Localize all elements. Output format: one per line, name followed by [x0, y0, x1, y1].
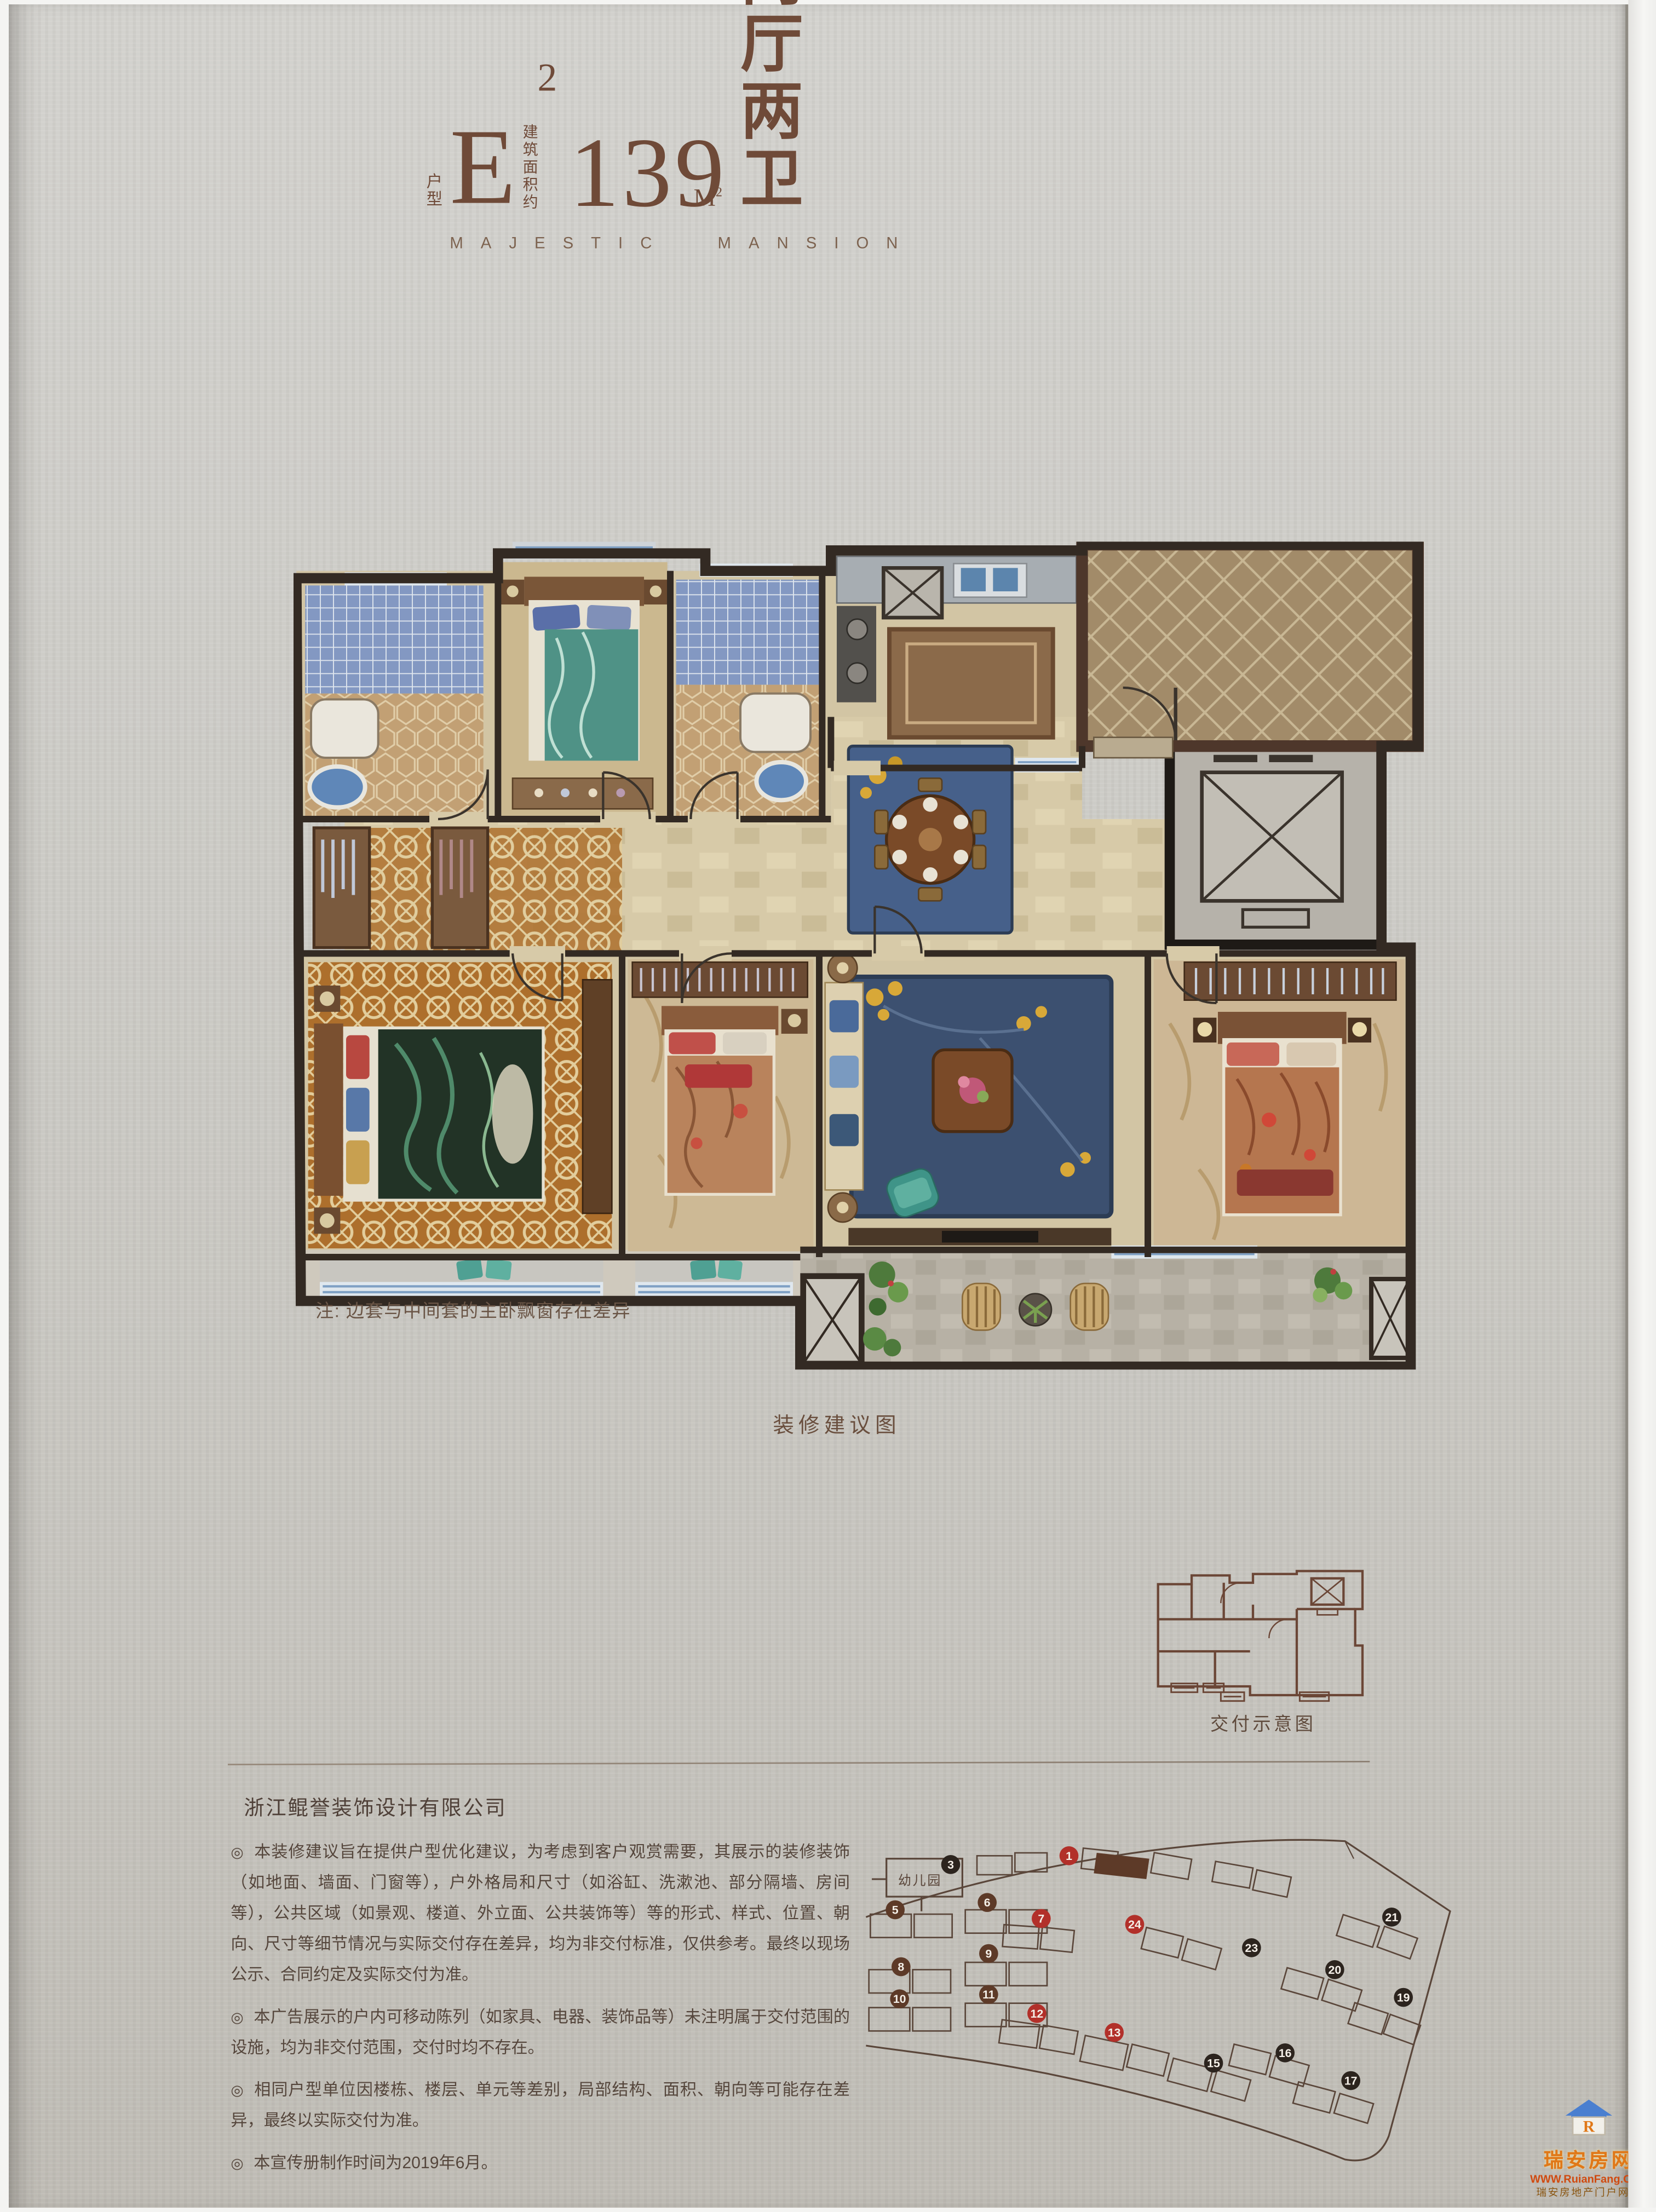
site-boundary	[866, 1840, 1450, 2160]
tv-icon	[942, 1231, 1038, 1242]
svg-text:11: 11	[982, 1988, 995, 2001]
elevator-x-icon	[1312, 1579, 1344, 1605]
disclaimer-text: 本广告展示的户内可移动陈列（如家具、电器、装饰品等）未注明属于交付范围的设施，均…	[231, 2009, 850, 2057]
pillow-icon	[690, 1259, 717, 1280]
photo-of-brochure: 户型 E 2 建筑面积约 139 M2 四房两厅两卫 MAJESTIC MANS…	[0, 0, 1656, 2208]
lamp-icon	[1352, 1022, 1367, 1037]
living-room	[825, 953, 1112, 1245]
svg-text:8: 8	[898, 1961, 904, 1974]
subtitle-majestic-mansion: MAJESTIC MANSION	[450, 235, 915, 252]
pillow-icon	[830, 1000, 859, 1033]
divider-line	[228, 1761, 1370, 1765]
brochure-page: 户型 E 2 建筑面积约 139 M2 四房两厅两卫 MAJESTIC MANS…	[9, 4, 1628, 2208]
stove-burner-icon	[847, 663, 867, 683]
bathroom-left	[305, 572, 483, 816]
svg-text:20: 20	[1328, 1963, 1341, 1977]
svg-text:23: 23	[1245, 1942, 1258, 1955]
basin-icon	[309, 767, 365, 808]
type-letter: E 2	[450, 121, 516, 215]
floor-plan-rendering	[294, 542, 1469, 1369]
bedroom-2	[501, 542, 668, 816]
highlighted-building	[1094, 1853, 1149, 1879]
patio-chair-icon	[962, 1283, 1000, 1330]
lamp-icon	[837, 962, 848, 973]
disclaimer-item: ◎本宣传册制作时间为2019年6月。	[231, 2149, 850, 2180]
pillow-icon	[830, 1056, 859, 1088]
svg-text:17: 17	[1344, 2075, 1358, 2088]
disclaimer-text: 本宣传册制作时间为2019年6月。	[254, 2155, 497, 2173]
kindergarten-label: 幼儿园	[898, 1874, 942, 1888]
delivery-schematic	[1154, 1570, 1370, 1704]
pillow-icon	[1227, 1042, 1279, 1066]
disclaimer-item: ◎本装修建议旨在提供户型优化建议，为考虑到客户观赏需要，其展示的装修装饰（如地面…	[231, 1838, 850, 1991]
pillow-icon	[723, 1032, 767, 1054]
toilet-icon	[740, 694, 810, 752]
bedroom-4	[1154, 959, 1405, 1246]
pillow-icon	[586, 605, 631, 631]
disclaimer-text: 相同户型单位因楼栋、楼层、单元等差别，局部结构、面积、朝向等可能存在差异，最终以…	[231, 2082, 850, 2130]
svg-text:13: 13	[1108, 2026, 1121, 2040]
bullet-icon: ◎	[231, 2157, 243, 2173]
area-unit: M2	[694, 184, 722, 213]
pillow-icon	[485, 1259, 512, 1280]
wardrobe	[583, 980, 612, 1213]
master-bedroom	[308, 962, 612, 1248]
toilet-icon	[311, 699, 378, 758]
sink-icon	[961, 568, 986, 591]
bay-windows	[320, 1257, 793, 1298]
pillow-icon	[346, 1088, 370, 1132]
disclaimer-list: ◎本装修建议旨在提供户型优化建议，为考虑到客户观赏需要，其展示的装修装饰（如地面…	[231, 1838, 850, 2191]
svg-text:10: 10	[893, 1992, 906, 2006]
svg-text:12: 12	[1030, 2007, 1043, 2020]
basin-icon	[756, 762, 806, 800]
pillow-icon	[669, 1032, 715, 1054]
lamp-icon	[1198, 1022, 1212, 1037]
bullet-icon: ◎	[231, 1846, 244, 1862]
bedroom-3	[628, 959, 814, 1251]
type-label: 户型	[427, 174, 442, 209]
pillow-icon	[830, 1114, 859, 1147]
photo-background-edge	[1628, 0, 1656, 2208]
lamp-icon	[788, 1014, 801, 1027]
svg-text:16: 16	[1279, 2047, 1292, 2060]
svg-text:24: 24	[1128, 1918, 1141, 1931]
svg-text:19: 19	[1397, 1991, 1410, 2004]
bullet-icon: ◎	[231, 2083, 244, 2099]
pillow-icon	[346, 1140, 370, 1184]
rooms-text: 四房两厅两卫	[740, 0, 817, 215]
pillow-icon	[1286, 1042, 1336, 1066]
svg-text:21: 21	[1385, 1911, 1398, 1924]
pillow-icon	[717, 1259, 743, 1281]
svg-text:R: R	[1583, 2118, 1595, 2135]
bathroom-right	[676, 563, 819, 816]
area-label: 建筑面积约	[523, 124, 538, 212]
disclaimer-item: ◎本广告展示的户内可移动陈列（如家具、电器、装饰品等）未注明属于交付范围的设施，…	[231, 2003, 850, 2065]
svg-text:15: 15	[1207, 2057, 1220, 2070]
pillow-icon	[532, 604, 580, 631]
company-name: 浙江鲲誉装饰设计有限公司	[244, 1793, 507, 1822]
patio-chair-icon	[1071, 1283, 1108, 1330]
plan-caption: 装修建议图	[9, 1409, 1656, 1439]
bullet-icon: ◎	[231, 2011, 243, 2026]
type-superscript: 2	[537, 31, 557, 124]
plan-note: 注: 边套与中间套的主卧飘窗存在差异	[315, 1295, 631, 1323]
pillow-icon	[346, 1035, 370, 1079]
hall-wardrobes	[314, 828, 622, 951]
pillow-icon	[456, 1258, 484, 1281]
lamp-icon	[320, 992, 335, 1006]
svg-text:9: 9	[985, 1948, 992, 1961]
house-logo-icon: R	[1564, 2098, 1614, 2136]
svg-text:6: 6	[984, 1896, 991, 1909]
svg-text:3: 3	[947, 1858, 954, 1871]
lamp-icon	[320, 1213, 335, 1228]
svg-text:7: 7	[1038, 1913, 1044, 1926]
disclaimer-item: ◎相同户型单位因楼栋、楼层、单元等差别，局部结构、面积、朝向等可能存在差异，最终…	[231, 2076, 850, 2138]
lamp-icon	[837, 1202, 848, 1213]
stove-burner-icon	[847, 619, 867, 640]
sink-icon	[993, 568, 1017, 591]
svg-text:5: 5	[892, 1904, 899, 1917]
delivery-caption: 交付示意图	[1154, 1708, 1373, 1736]
svg-text:1: 1	[1066, 1850, 1072, 1863]
disclaimer-text: 本装修建议旨在提供户型优化建议，为考虑到客户观赏需要，其展示的装修装饰（如地面、…	[231, 1844, 850, 1984]
bed-headboard	[314, 1023, 343, 1196]
